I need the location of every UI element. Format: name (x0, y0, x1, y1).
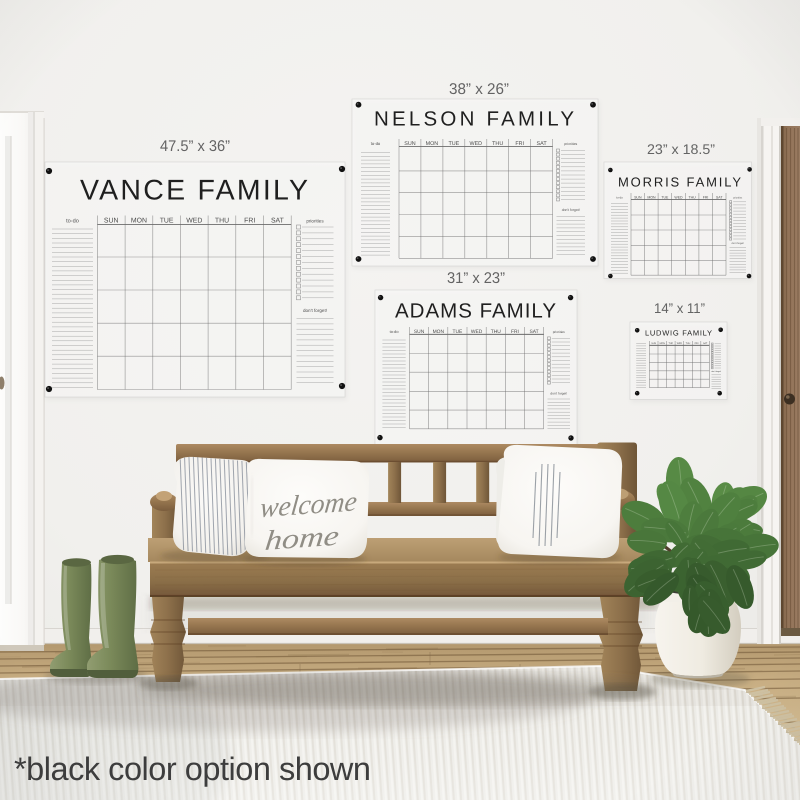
svg-text:*black color option shown: *black color option shown (14, 751, 371, 787)
